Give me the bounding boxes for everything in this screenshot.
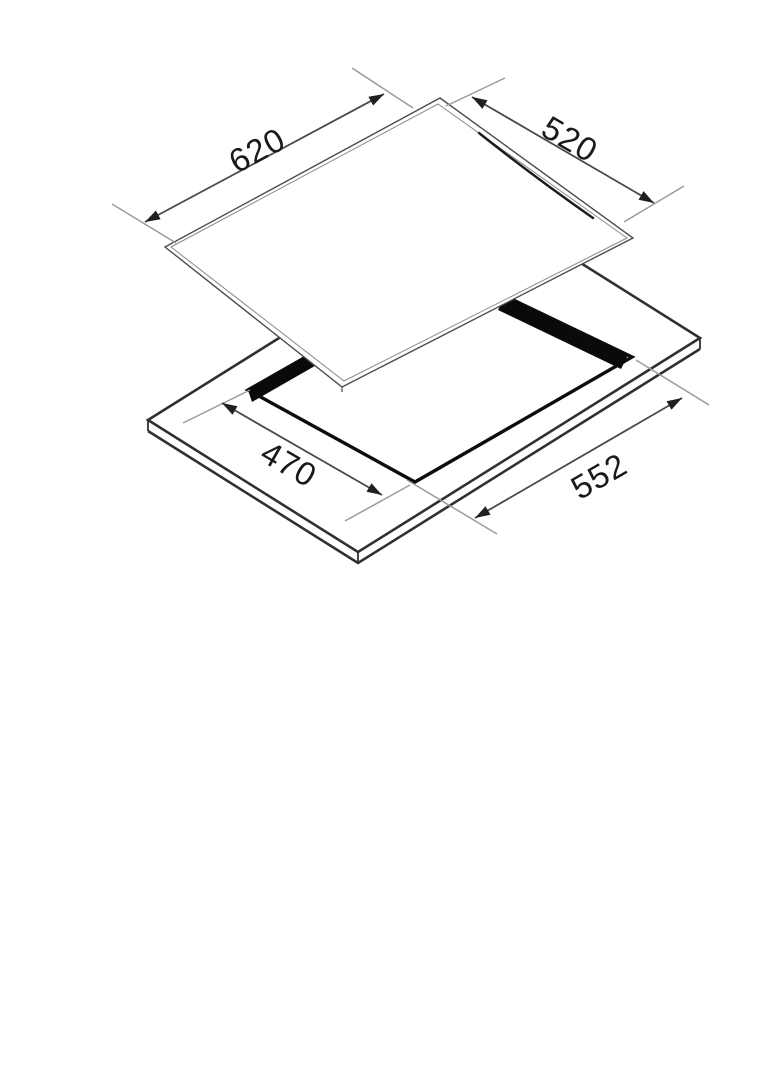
dim-520-arrow-right bbox=[639, 191, 655, 203]
dim-552-arrow-left bbox=[475, 506, 491, 518]
dim-620-arrow-right bbox=[368, 94, 384, 106]
dim-620-extension-right bbox=[352, 68, 413, 108]
dim-520-arrow-left bbox=[472, 97, 488, 109]
dim-620-label: 620 bbox=[223, 120, 292, 180]
dim-552-arrow-right bbox=[667, 398, 683, 410]
dim-620-arrow-left bbox=[145, 211, 161, 223]
dim-520-label: 520 bbox=[536, 108, 605, 169]
installation-dimension-diagram: 620 520 470 bbox=[0, 0, 764, 1080]
dim-520-extension-left bbox=[446, 78, 505, 106]
document-page: 620 520 470 bbox=[0, 0, 764, 1080]
dim-552-label: 552 bbox=[565, 445, 634, 506]
